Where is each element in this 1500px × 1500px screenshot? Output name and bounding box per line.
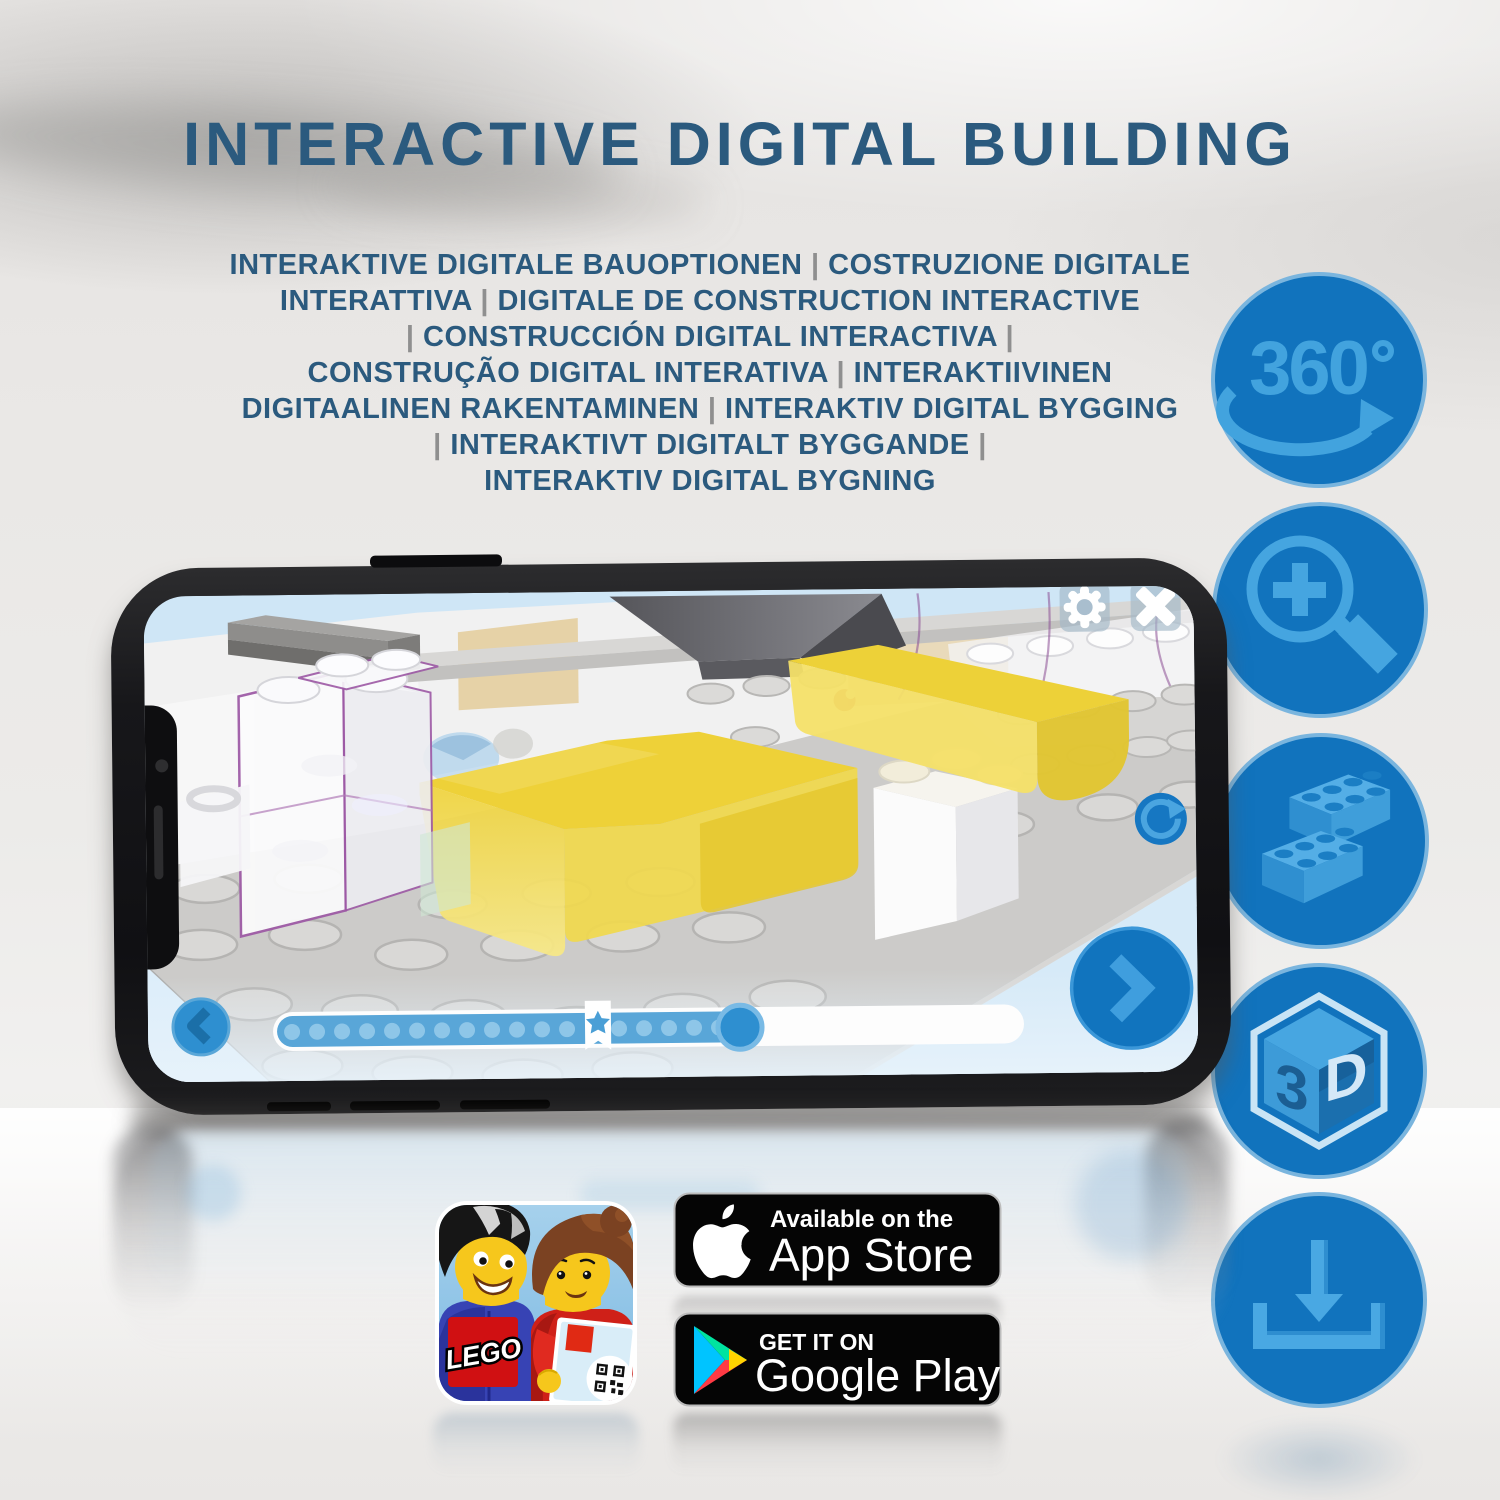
svg-text:Google Play: Google Play [755,1350,1001,1401]
svg-text:App Store: App Store [769,1229,974,1281]
svg-text:360: 360 [1249,326,1368,411]
svg-text:D: D [1324,1036,1367,1115]
svg-text:3: 3 [1275,1049,1308,1125]
